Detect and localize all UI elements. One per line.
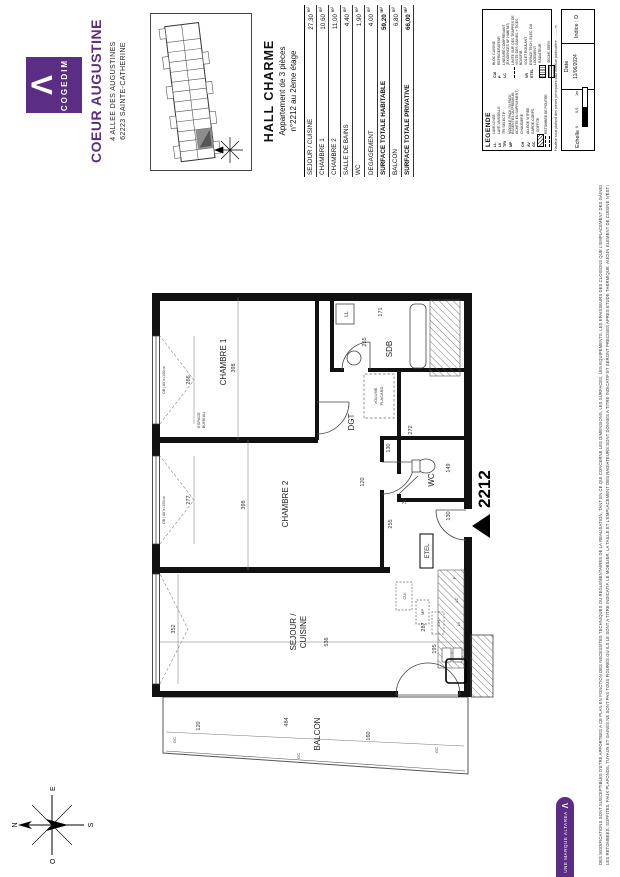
legend-item: RETOMBEE DE POUTRE	[545, 81, 550, 147]
cogedim-logo-word: COGEDIM	[60, 57, 69, 113]
table-row: CHAMBRE 110,60 m²	[317, 5, 329, 177]
compass-rose: N S E O	[10, 785, 96, 865]
index-box: Indice : D	[561, 9, 595, 43]
common-duct-hatch	[471, 635, 493, 697]
dim-130a: 130	[446, 511, 452, 520]
label-gc-top: GC	[172, 737, 177, 743]
scale-box: Echelle 0 0,5 1m	[561, 89, 595, 151]
label-etel: ETEL	[425, 543, 431, 559]
ribbon-text: UNE MARQUE ALTAREA	[563, 811, 568, 872]
dashed-line-icon	[514, 67, 515, 78]
label-gc-bottom: GC	[434, 747, 439, 753]
dim-484: 484	[284, 717, 290, 726]
compass-s: S	[88, 822, 95, 827]
dim-171: 171	[378, 307, 384, 316]
label-lc: LC	[454, 597, 459, 602]
dim-160: 160	[366, 731, 372, 740]
table-row: DEGAGEMENT4,00 m²	[365, 5, 377, 177]
beam-swatch-icon	[545, 136, 550, 147]
table-row-total: SURFACE TOTALE HABITABLE59,20 m²	[377, 5, 389, 177]
room-label-chambre1: CHAMBRE 1	[219, 338, 228, 385]
residence-title: COEUR AUGUSTINE	[88, 3, 104, 179]
room-label-sejour-2: CUISINE	[299, 616, 308, 648]
plan-sheet: N S E O	[0, 0, 620, 877]
address-line-2: 62223 SAINTE-CATHERINE	[120, 3, 127, 179]
area-value: 10,60 m²	[317, 5, 329, 42]
area-value: 27,30 m²	[305, 5, 317, 42]
label-espace-bureau-2: BUREAU	[201, 412, 206, 429]
label-window-ch2: OB | AV h=100cm	[162, 496, 166, 524]
hall-title: HALL CHARME	[262, 3, 276, 179]
label-volume-placard-2: PLACARD	[379, 386, 384, 405]
scale-label: Echelle	[575, 130, 581, 148]
apartment-location: n°2212 au 2ème étage	[289, 3, 298, 179]
label-volume-placard-1: VOLUME	[373, 387, 378, 404]
compass-n: N	[12, 822, 19, 827]
cogedim-logo-glyph: Λ	[26, 57, 60, 113]
dim-149: 149	[446, 463, 452, 472]
legend-item: MPMODULE PACK (SI PACK ESSENTIEL OU PREM…	[509, 81, 521, 147]
table-row: SEJOUR / CUISINE27,30 m²	[305, 5, 317, 177]
area-value: 4,40 m²	[341, 5, 353, 42]
legend: LEGENDE LLLAVE-LINGE LVLAVE-VAISSELLE TR…	[482, 9, 552, 151]
legend-item: SOFFITE	[537, 81, 544, 147]
area-value: 1,90 m²	[353, 5, 365, 42]
legend-item: LIMITE SUP. DES TRAPPES DE VISITE DES GA…	[512, 12, 524, 78]
dim-398b: 398	[241, 500, 247, 509]
entrance-marker: 2212	[472, 470, 494, 538]
dim-255a: 255	[362, 337, 368, 346]
label-ch: CH	[436, 620, 441, 626]
legend-item: LCLINEAIRE COMPRENANT (EXIGENCES NF HABI…	[503, 12, 511, 78]
room-label-wc: WC	[427, 473, 436, 487]
area-value: 6,80 m²	[389, 5, 401, 42]
date-box: Date 11/06/2024	[561, 43, 595, 89]
dim-352: 352	[171, 624, 177, 633]
date-label: Date	[564, 44, 570, 89]
area-label: SEJOUR / CUISINE	[305, 42, 317, 177]
kitchen-zone	[396, 570, 466, 683]
label-mp: MP	[420, 609, 425, 615]
soffit-swatch-icon	[537, 134, 544, 147]
area-label: SURFACE TOTALE PRIVATIVE	[401, 42, 413, 177]
dim-255b: 255	[388, 519, 394, 528]
cogedim-logo: Λ COGEDIM	[26, 57, 82, 113]
table-row-total: SURFACE TOTALE PRIVATIVE66,00 m²	[401, 5, 413, 177]
room-label-sdb: SDB	[385, 341, 394, 357]
table-row: CHAMBRE 211,00 m²	[329, 5, 341, 177]
area-value: 11,00 m²	[329, 5, 341, 42]
table-row: SALLE DE BAINS4,40 m²	[341, 5, 353, 177]
area-label: BALCON	[389, 42, 401, 177]
areas-table: SEJOUR / CUISINE27,30 m² CHAMBRE 110,60 …	[304, 5, 414, 177]
index-value: Indice : D	[574, 10, 580, 43]
area-label: DEGAGEMENT	[365, 42, 377, 177]
radiator-icon	[539, 65, 546, 78]
legend-item: TRITRI SELECTIF	[503, 81, 507, 147]
area-value: 59,20 m²	[377, 5, 389, 42]
room-label-chambre2: CHAMBRE 2	[281, 480, 290, 527]
dim-130b: 130	[386, 443, 392, 452]
table-row: BALCON6,80 m²	[389, 5, 401, 177]
label-lv: LV	[456, 621, 461, 626]
disclaimer-line-1: DES MODIFICATIONS SONT SUSCEPTIBLES D'ET…	[598, 185, 603, 865]
label-gc-mid: GC	[296, 753, 301, 759]
room-label-dgt: DGT	[347, 413, 356, 430]
unit-number: 2212	[475, 470, 494, 508]
compass-e: E	[50, 786, 57, 791]
area-value: 66,00 m²	[401, 5, 413, 42]
label-window-ch1: OB | AV h=100cm	[162, 366, 166, 394]
room-label-sejour-1: SEJOUR /	[289, 613, 298, 651]
dim-195: 195	[432, 644, 438, 653]
dim-272: 272	[408, 425, 414, 434]
area-label: CHAMBRE 1	[317, 42, 329, 177]
area-label: CHAMBRE 2	[329, 42, 341, 177]
legend-item: ETELESPACE TECH. ELEC. DU LOGEMENT	[530, 12, 538, 78]
area-label: SALLE DE BAINS	[341, 42, 353, 177]
area-value: 4,00 m²	[365, 5, 377, 42]
address-line-1: 4 ALLEE DES AUGUSTINES	[110, 3, 117, 179]
site-plan	[150, 13, 252, 171]
dim-120a: 120	[360, 477, 366, 486]
title-block-column: Λ COGEDIM COEUR AUGUSTINE 4 ALLEE DES AU…	[0, 3, 620, 179]
soffit-hatch	[430, 300, 460, 376]
dim-30: 30	[402, 498, 408, 504]
ceiling-height-note: Hauteur sous plafond des pièces principa…	[554, 9, 558, 151]
table-row: WC1,90 m²	[353, 5, 365, 177]
label-ll: LL	[344, 311, 350, 317]
legend-item: RADIATEUR	[539, 12, 546, 78]
disclaimer-line-2: LES RETOMBEES, SOFFITES, FAUX PLAFONDS, …	[605, 185, 610, 865]
dim-266: 266	[186, 375, 192, 384]
dim-536: 536	[324, 637, 330, 646]
area-label: SURFACE TOTALE HABITABLE	[377, 42, 389, 177]
dim-120b: 120	[196, 721, 202, 730]
altarea-logo-glyph: Λ	[561, 803, 570, 808]
area-label: WC	[353, 42, 365, 177]
apartment-type: Appartement de 3 pièces	[278, 3, 287, 179]
label-cui: CUI	[402, 593, 407, 600]
altarea-ribbon: UNE MARQUE ALTAREA Λ	[556, 797, 574, 877]
titleblock-strip: Echelle 0 0,5 1m Date 11/06/2024 Indice …	[561, 9, 595, 151]
compass-o: O	[50, 858, 57, 864]
legend-item: GCGARDE-CORPS	[532, 81, 536, 147]
dim-398a: 398	[231, 363, 237, 372]
label-p: P	[452, 576, 457, 579]
dim-277: 277	[186, 495, 192, 504]
floor-plan: 2212 CHAMBRE 1 CHAMBRE 2 SEJOUR / CUISIN…	[138, 277, 506, 792]
legend-title: LEGENDE	[485, 12, 492, 147]
date-value: 11/06/2024	[573, 44, 579, 89]
legend-item: CHCHAUDIERE	[521, 81, 525, 147]
scale-bar: 0 0,5 1m	[576, 92, 586, 127]
room-label-balcon: BALCON	[313, 717, 322, 750]
dim-287: 287	[421, 622, 427, 631]
